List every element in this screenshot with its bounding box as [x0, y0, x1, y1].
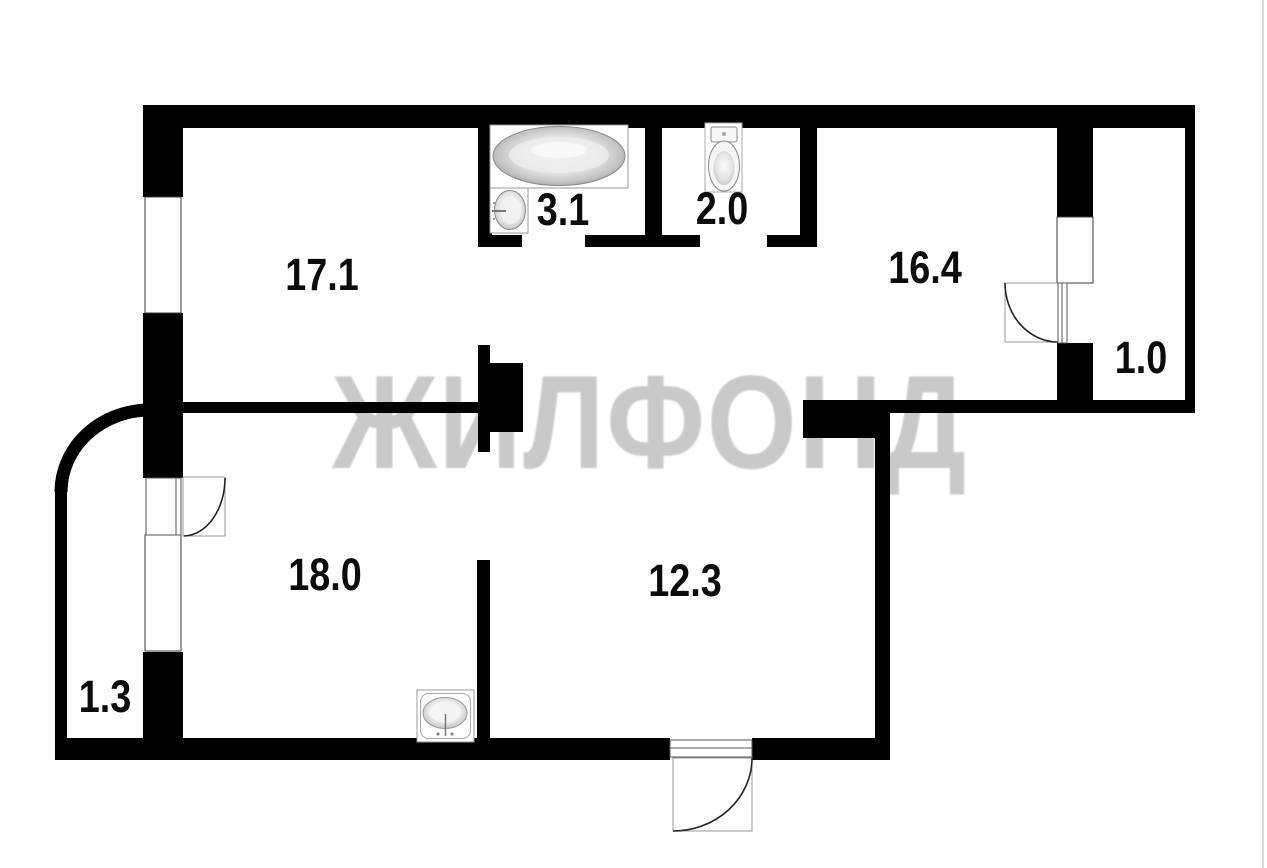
page-edge-line	[1262, 0, 1264, 868]
window-balcony-left-icon	[145, 535, 181, 651]
wall-bottom-left-seg	[55, 738, 670, 760]
wall-between-18-and-12	[477, 560, 490, 738]
wall-left-upper	[143, 105, 183, 197]
door-balcony-left-icon	[146, 477, 225, 536]
label-room-12-3: 12.3	[648, 555, 722, 606]
label-balcony-1-0: 1.0	[1115, 332, 1168, 383]
label-room-17-1: 17.1	[285, 249, 359, 300]
wall-column	[490, 363, 523, 432]
wall-164-upper	[1057, 118, 1093, 217]
wall-164-lower	[1057, 343, 1093, 400]
wall-bottomwing-right	[875, 438, 890, 760]
floorplan-page: ЖИЛФОНД	[0, 0, 1267, 868]
label-balcony-1-3: 1.3	[79, 671, 132, 722]
bathtub-icon	[490, 125, 628, 188]
wall-hall-vertical	[478, 345, 490, 452]
wall-rightwing-bottom	[890, 400, 1195, 413]
wall-toilet-right	[800, 118, 817, 247]
wall-left-middle	[143, 313, 183, 478]
door-entrance-icon	[670, 740, 752, 831]
wall-right-outer	[1185, 105, 1195, 413]
wall-top	[145, 105, 1195, 128]
kitchen-sink-icon	[417, 690, 474, 742]
label-room-18-0: 18.0	[288, 549, 362, 600]
label-toilet-2-0: 2.0	[696, 183, 749, 234]
wall-bath-toilet-divider	[645, 123, 662, 235]
toilet-icon	[705, 123, 742, 192]
bathroom-sink-icon	[490, 188, 528, 233]
wall-corridor-block	[803, 400, 890, 438]
wall-balcony-side	[55, 484, 67, 750]
window-left-wall-icon	[145, 197, 181, 313]
label-bathroom-3-1: 3.1	[537, 184, 590, 235]
wall-bath-bottom-a	[478, 235, 522, 247]
wall-between-17-and-18	[183, 402, 478, 413]
label-room-16-4: 16.4	[888, 242, 962, 293]
wall-balcony-curve	[61, 410, 150, 492]
floorplan-drawing: ЖИЛФОНД	[0, 0, 1267, 868]
window-balcony-right-icon	[1057, 217, 1093, 283]
door-balcony-right-icon	[1005, 283, 1067, 343]
wall-bath-bottom-b	[585, 235, 700, 247]
wall-bottom-right-seg	[752, 738, 890, 760]
